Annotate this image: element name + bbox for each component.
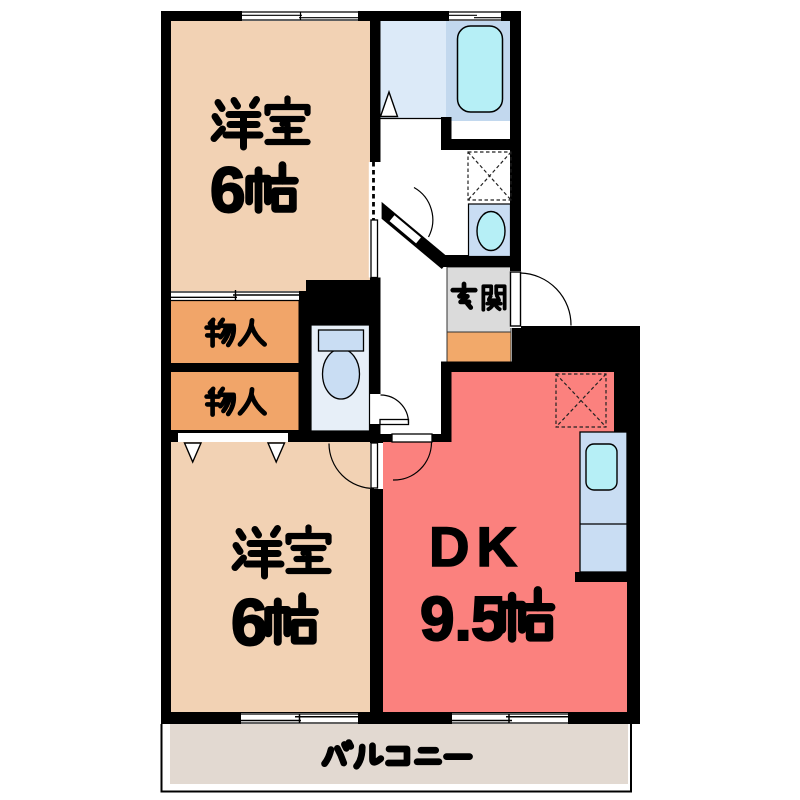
svg-text:6: 6 [210, 154, 246, 226]
svg-text:DK: DK [429, 515, 524, 578]
svg-text:6: 6 [231, 585, 268, 659]
svg-text:9.: 9. [420, 585, 472, 654]
